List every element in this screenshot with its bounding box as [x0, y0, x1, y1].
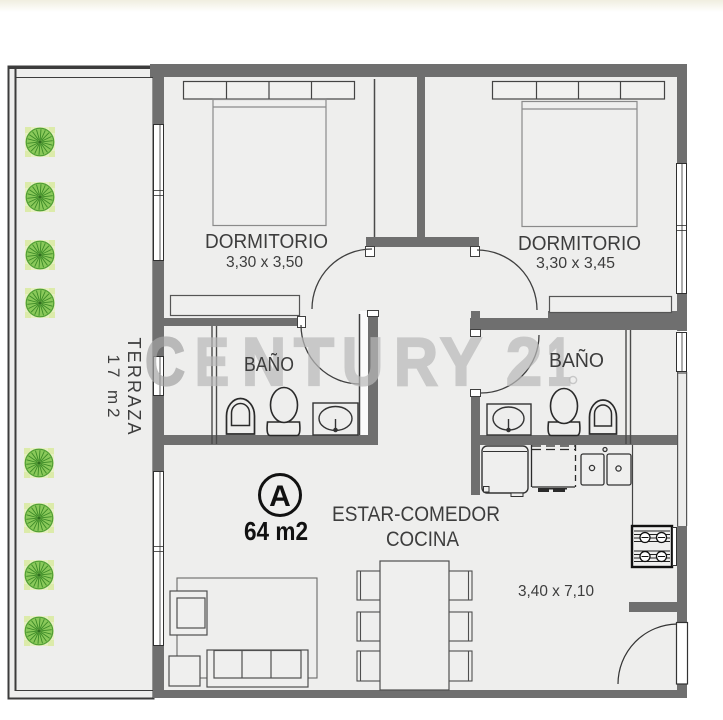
- svg-text:2: 2: [506, 324, 542, 400]
- svg-text:DORMITORIO: DORMITORIO: [205, 231, 328, 253]
- svg-text:R: R: [394, 324, 438, 400]
- svg-text:3,40 x 7,10: 3,40 x 7,10: [518, 583, 594, 600]
- svg-text:64 m2: 64 m2: [244, 516, 308, 546]
- svg-text:BAÑO: BAÑO: [549, 348, 604, 372]
- svg-text:Y: Y: [440, 324, 482, 400]
- svg-text:A: A: [269, 480, 291, 513]
- svg-text:U: U: [342, 324, 383, 400]
- svg-text:3,30 x 3,50: 3,30 x 3,50: [226, 254, 303, 271]
- svg-text:BAÑO: BAÑO: [244, 352, 294, 376]
- svg-text:ESTAR-COMEDOR: ESTAR-COMEDOR: [332, 503, 500, 526]
- svg-text:17 m2: 17 m2: [104, 355, 123, 418]
- svg-text:T: T: [294, 324, 334, 400]
- svg-text:E: E: [195, 324, 229, 400]
- svg-text:C: C: [145, 324, 185, 400]
- svg-text:DORMITORIO: DORMITORIO: [518, 233, 641, 255]
- svg-text:3,30 x 3,45: 3,30 x 3,45: [536, 255, 615, 272]
- svg-text:COCINA: COCINA: [386, 528, 459, 551]
- svg-text:TERRAZA: TERRAZA: [124, 338, 144, 435]
